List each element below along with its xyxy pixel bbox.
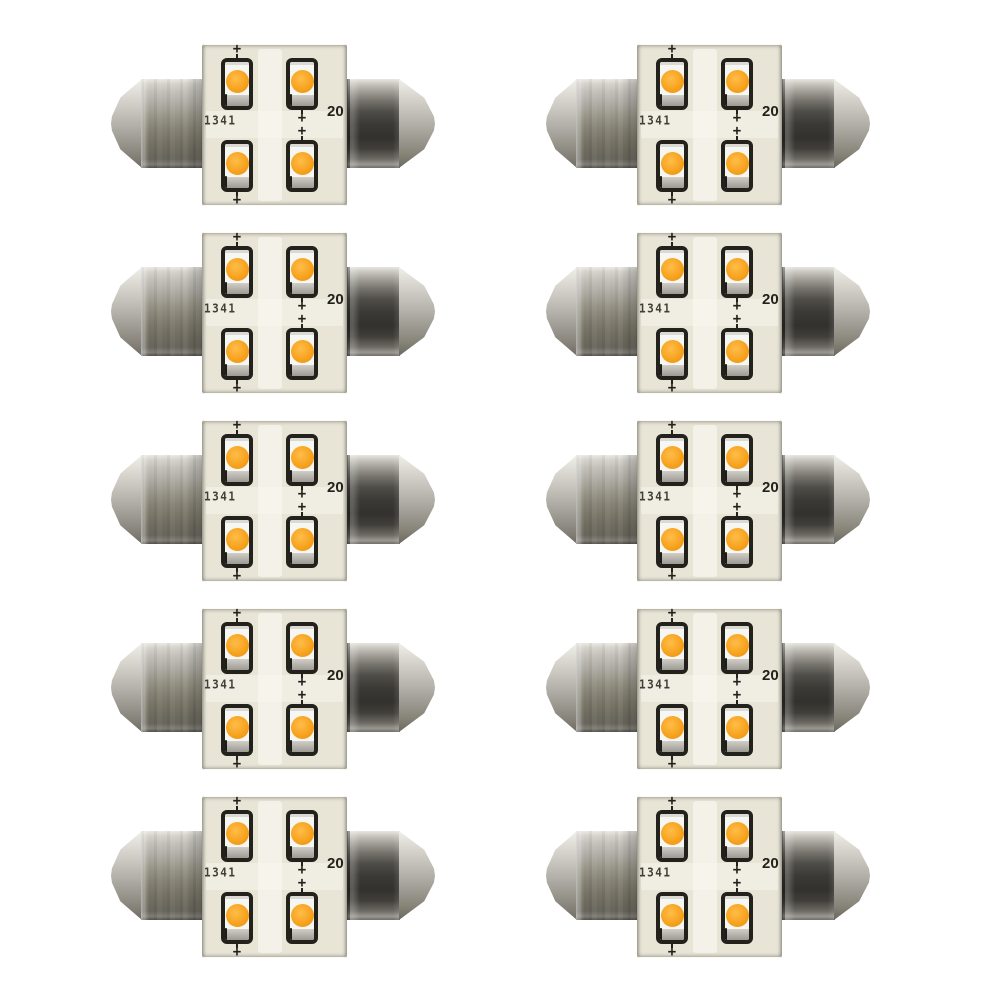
end-cap-tip-right xyxy=(834,831,870,920)
end-cap-right xyxy=(347,643,400,732)
end-cap-right xyxy=(782,643,835,732)
pcb-right-code-label: 20 xyxy=(762,292,779,308)
polarity-plus-icon: + xyxy=(729,127,745,140)
polarity-plus-icon: + xyxy=(294,862,310,875)
led-amber-die xyxy=(291,904,314,927)
led-amber-die xyxy=(661,258,684,281)
festoon-led-bulb: + + + + 1341 20 xyxy=(546,796,870,958)
led-amber-die xyxy=(291,152,314,175)
smd-led xyxy=(221,246,253,298)
polarity-plus-icon: + xyxy=(664,233,680,246)
led-electrode-pad xyxy=(660,95,684,106)
end-cap-tip-right xyxy=(834,455,870,544)
led-top-contact xyxy=(725,626,749,629)
plus-glyph: + xyxy=(733,691,741,700)
led-electrode-pad xyxy=(660,929,684,940)
led-electrode-pad xyxy=(290,741,314,752)
electrode-mark xyxy=(725,364,727,380)
led-top-contact xyxy=(290,438,314,441)
led-amber-die xyxy=(661,446,684,469)
polarity-tick xyxy=(301,324,303,328)
polarity-plus-icon: + xyxy=(729,298,745,311)
smd-led xyxy=(656,892,688,944)
pcb-board: + + + + 1341 20 xyxy=(637,44,782,206)
smd-led xyxy=(721,434,753,486)
led-amber-die xyxy=(291,446,314,469)
smd-led xyxy=(221,622,253,674)
plus-glyph: + xyxy=(298,315,306,324)
plus-glyph: + xyxy=(733,678,741,687)
end-cap-left xyxy=(576,831,638,920)
smd-led xyxy=(221,434,253,486)
led-top-contact xyxy=(725,250,749,253)
end-cap-tip-right xyxy=(399,455,435,544)
end-cap-right xyxy=(782,79,835,168)
polarity-plus-icon: + xyxy=(229,45,245,58)
led-electrode-pad xyxy=(290,283,314,294)
smd-led xyxy=(286,140,318,192)
led-top-contact xyxy=(225,144,249,147)
led-amber-die xyxy=(226,70,249,93)
plus-glyph: + xyxy=(233,760,241,769)
led-top-contact xyxy=(660,814,684,817)
led-electrode-pad xyxy=(225,177,249,188)
end-cap-left xyxy=(576,267,638,356)
plus-glyph: + xyxy=(233,609,241,618)
smd-led xyxy=(221,328,253,380)
end-cap-tip-right xyxy=(834,643,870,732)
led-top-contact xyxy=(725,332,749,335)
end-cap-tip-left xyxy=(546,831,577,920)
end-cap-right xyxy=(782,831,835,920)
led-electrode-pad xyxy=(225,95,249,106)
pcb-right-code-label: 20 xyxy=(327,292,344,308)
polarity-tick xyxy=(236,242,238,246)
pcb-date-code-label: 1341 xyxy=(204,678,237,692)
pcb-date-code-label: 1341 xyxy=(204,490,237,504)
led-amber-die xyxy=(291,634,314,657)
end-cap-right xyxy=(782,455,835,544)
pcb-date-code-label: 1341 xyxy=(639,490,672,504)
plus-glyph: + xyxy=(668,572,676,581)
polarity-plus-icon: + xyxy=(294,879,310,892)
pcb-date-code-label: 1341 xyxy=(204,302,237,316)
electrode-mark xyxy=(725,552,727,568)
led-amber-die xyxy=(291,528,314,551)
led-amber-die xyxy=(661,716,684,739)
plus-glyph: + xyxy=(668,421,676,430)
smd-led xyxy=(656,434,688,486)
led-amber-die xyxy=(226,822,249,845)
polarity-plus-icon: + xyxy=(664,421,680,434)
electrode-mark xyxy=(660,282,662,298)
pcb-right-code-label: 20 xyxy=(762,104,779,120)
led-amber-die xyxy=(226,152,249,175)
end-cap-right xyxy=(347,79,400,168)
end-cap-tip-left xyxy=(111,455,142,544)
polarity-plus-icon: + xyxy=(664,756,680,769)
plus-glyph: + xyxy=(298,678,306,687)
led-amber-die xyxy=(291,258,314,281)
smd-led xyxy=(721,704,753,756)
led-electrode-pad xyxy=(725,659,749,670)
plus-glyph: + xyxy=(668,797,676,806)
polarity-plus-icon: + xyxy=(664,568,680,581)
electrode-mark xyxy=(725,94,727,110)
led-top-contact xyxy=(225,896,249,899)
polarity-plus-icon: + xyxy=(294,674,310,687)
led-top-contact xyxy=(290,144,314,147)
led-electrode-pad xyxy=(660,177,684,188)
led-electrode-pad xyxy=(290,177,314,188)
led-top-contact xyxy=(660,332,684,335)
led-top-contact xyxy=(660,626,684,629)
electrode-mark xyxy=(225,658,227,674)
festoon-led-bulb: + + + + 1341 20 xyxy=(111,232,435,394)
polarity-plus-icon: + xyxy=(229,192,245,205)
led-amber-die xyxy=(726,340,749,363)
led-top-contact xyxy=(225,332,249,335)
plus-glyph: + xyxy=(298,866,306,875)
pcb-board: + + + + 1341 20 xyxy=(202,420,347,582)
end-cap-right xyxy=(782,267,835,356)
electrode-mark xyxy=(225,364,227,380)
electrode-mark xyxy=(290,176,292,192)
led-amber-die xyxy=(226,446,249,469)
led-top-contact xyxy=(660,144,684,147)
electrode-mark xyxy=(290,658,292,674)
led-top-contact xyxy=(725,520,749,523)
electrode-mark xyxy=(225,470,227,486)
plus-glyph: + xyxy=(733,315,741,324)
smd-led xyxy=(721,58,753,110)
smd-led xyxy=(721,892,753,944)
smd-led xyxy=(721,516,753,568)
end-cap-tip-left xyxy=(546,79,577,168)
led-top-contact xyxy=(290,626,314,629)
electrode-mark xyxy=(660,470,662,486)
smd-led xyxy=(721,328,753,380)
pcb-date-code-label: 1341 xyxy=(204,114,237,128)
led-electrode-pad xyxy=(290,95,314,106)
electrode-mark xyxy=(225,94,227,110)
polarity-plus-icon: + xyxy=(729,486,745,499)
led-top-contact xyxy=(225,62,249,65)
end-cap-tip-right xyxy=(399,267,435,356)
electrode-mark xyxy=(725,470,727,486)
smd-led xyxy=(286,328,318,380)
led-amber-die xyxy=(661,904,684,927)
polarity-tick xyxy=(236,430,238,434)
led-top-contact xyxy=(225,520,249,523)
polarity-plus-icon: + xyxy=(729,691,745,704)
led-top-contact xyxy=(660,896,684,899)
led-electrode-pad xyxy=(225,471,249,482)
electrode-mark xyxy=(660,928,662,944)
pcb-right-code-label: 20 xyxy=(762,856,779,872)
polarity-tick xyxy=(736,136,738,140)
polarity-plus-icon: + xyxy=(729,503,745,516)
electrode-mark xyxy=(290,740,292,756)
led-electrode-pad xyxy=(225,659,249,670)
led-electrode-pad xyxy=(290,847,314,858)
plus-glyph: + xyxy=(233,948,241,957)
pcb-board: + + + + 1341 20 xyxy=(202,608,347,770)
pcb-date-code-label: 1341 xyxy=(204,866,237,880)
led-amber-die xyxy=(661,634,684,657)
pcb-date-code-label: 1341 xyxy=(639,678,672,692)
polarity-plus-icon: + xyxy=(729,110,745,123)
electrode-mark xyxy=(225,552,227,568)
led-amber-die xyxy=(661,340,684,363)
smd-led xyxy=(721,810,753,862)
electrode-mark xyxy=(225,740,227,756)
polarity-plus-icon: + xyxy=(729,315,745,328)
pcb-right-code-label: 20 xyxy=(327,480,344,496)
polarity-tick xyxy=(736,700,738,704)
pcb-right-code-label: 20 xyxy=(762,668,779,684)
led-electrode-pad xyxy=(725,365,749,376)
electrode-mark xyxy=(725,282,727,298)
plus-glyph: + xyxy=(733,866,741,875)
end-cap-right xyxy=(347,831,400,920)
pcb-right-code-label: 20 xyxy=(762,480,779,496)
polarity-plus-icon: + xyxy=(229,797,245,810)
electrode-mark xyxy=(290,846,292,862)
polarity-plus-icon: + xyxy=(294,110,310,123)
smd-led xyxy=(656,140,688,192)
led-top-contact xyxy=(290,896,314,899)
polarity-plus-icon: + xyxy=(729,879,745,892)
electrode-mark xyxy=(660,94,662,110)
end-cap-tip-left xyxy=(111,79,142,168)
polarity-plus-icon: + xyxy=(664,45,680,58)
smd-led xyxy=(221,140,253,192)
smd-led xyxy=(221,810,253,862)
plus-glyph: + xyxy=(233,384,241,393)
led-amber-die xyxy=(661,528,684,551)
smd-led xyxy=(656,58,688,110)
led-amber-die xyxy=(726,528,749,551)
polarity-tick xyxy=(671,430,673,434)
festoon-led-bulb: + + + + 1341 20 xyxy=(111,44,435,206)
led-amber-die xyxy=(226,634,249,657)
led-electrode-pad xyxy=(725,283,749,294)
smd-led xyxy=(286,892,318,944)
smd-led xyxy=(721,622,753,674)
festoon-led-bulb: + + + + 1341 20 xyxy=(546,232,870,394)
electrode-mark xyxy=(225,282,227,298)
plus-glyph: + xyxy=(298,114,306,123)
polarity-plus-icon: + xyxy=(729,862,745,875)
polarity-plus-icon: + xyxy=(664,192,680,205)
plus-glyph: + xyxy=(668,233,676,242)
led-electrode-pad xyxy=(725,471,749,482)
polarity-tick xyxy=(671,806,673,810)
smd-led xyxy=(286,810,318,862)
polarity-tick xyxy=(301,512,303,516)
led-amber-die xyxy=(726,822,749,845)
polarity-plus-icon: + xyxy=(294,691,310,704)
electrode-mark xyxy=(225,176,227,192)
end-cap-left xyxy=(141,455,203,544)
led-amber-die xyxy=(226,258,249,281)
end-cap-right xyxy=(347,267,400,356)
led-top-contact xyxy=(725,438,749,441)
smd-led xyxy=(721,246,753,298)
electrode-mark xyxy=(660,740,662,756)
end-cap-left xyxy=(576,455,638,544)
end-cap-left xyxy=(576,79,638,168)
led-electrode-pad xyxy=(660,283,684,294)
plus-glyph: + xyxy=(733,114,741,123)
polarity-plus-icon: + xyxy=(294,127,310,140)
pcb-board: + + + + 1341 20 xyxy=(202,44,347,206)
pcb-date-code-label: 1341 xyxy=(639,114,672,128)
plus-glyph: + xyxy=(668,384,676,393)
led-electrode-pad xyxy=(660,659,684,670)
led-electrode-pad xyxy=(225,847,249,858)
led-amber-die xyxy=(726,446,749,469)
electrode-mark xyxy=(660,658,662,674)
end-cap-left xyxy=(141,267,203,356)
smd-led xyxy=(221,58,253,110)
pcb-right-code-label: 20 xyxy=(327,668,344,684)
polarity-plus-icon: + xyxy=(294,486,310,499)
led-top-contact xyxy=(225,708,249,711)
led-electrode-pad xyxy=(660,847,684,858)
led-electrode-pad xyxy=(725,741,749,752)
end-cap-tip-left xyxy=(546,455,577,544)
led-top-contact xyxy=(290,814,314,817)
polarity-tick xyxy=(301,700,303,704)
end-cap-tip-left xyxy=(111,267,142,356)
led-amber-die xyxy=(291,822,314,845)
end-cap-left xyxy=(576,643,638,732)
led-electrode-pad xyxy=(225,365,249,376)
pcb-board: + + + + 1341 20 xyxy=(637,232,782,394)
plus-glyph: + xyxy=(298,490,306,499)
led-top-contact xyxy=(225,438,249,441)
led-electrode-pad xyxy=(290,365,314,376)
plus-glyph: + xyxy=(668,196,676,205)
electrode-mark xyxy=(290,552,292,568)
led-amber-die xyxy=(226,340,249,363)
electrode-mark xyxy=(660,176,662,192)
end-cap-left xyxy=(141,831,203,920)
electrode-mark xyxy=(225,846,227,862)
led-top-contact xyxy=(290,708,314,711)
polarity-plus-icon: + xyxy=(229,233,245,246)
led-top-contact xyxy=(725,144,749,147)
smd-led xyxy=(656,704,688,756)
end-cap-tip-right xyxy=(399,831,435,920)
led-amber-die xyxy=(661,70,684,93)
led-amber-die xyxy=(226,904,249,927)
pcb-board: + + + + 1341 20 xyxy=(202,232,347,394)
led-top-contact xyxy=(225,250,249,253)
led-amber-die xyxy=(291,70,314,93)
polarity-plus-icon: + xyxy=(294,503,310,516)
plus-glyph: + xyxy=(233,572,241,581)
pcb-board: + + + + 1341 20 xyxy=(637,796,782,958)
led-electrode-pad xyxy=(225,929,249,940)
electrode-mark xyxy=(660,846,662,862)
festoon-led-bulb: + + + + 1341 20 xyxy=(546,44,870,206)
led-electrode-pad xyxy=(725,553,749,564)
end-cap-tip-right xyxy=(399,79,435,168)
electrode-mark xyxy=(290,928,292,944)
polarity-plus-icon: + xyxy=(229,421,245,434)
end-cap-tip-left xyxy=(111,643,142,732)
led-top-contact xyxy=(290,62,314,65)
smd-led xyxy=(221,704,253,756)
led-top-contact xyxy=(660,708,684,711)
polarity-tick xyxy=(736,324,738,328)
festoon-led-bulb: + + + + 1341 20 xyxy=(111,796,435,958)
led-top-contact xyxy=(660,250,684,253)
led-amber-die xyxy=(226,716,249,739)
polarity-plus-icon: + xyxy=(294,298,310,311)
plus-glyph: + xyxy=(668,45,676,54)
led-top-contact xyxy=(725,62,749,65)
end-cap-tip-right xyxy=(399,643,435,732)
polarity-plus-icon: + xyxy=(664,380,680,393)
plus-glyph: + xyxy=(668,948,676,957)
smd-led xyxy=(286,704,318,756)
festoon-led-bulb: + + + + 1341 20 xyxy=(546,420,870,582)
electrode-mark xyxy=(725,928,727,944)
led-top-contact xyxy=(290,332,314,335)
end-cap-left xyxy=(141,643,203,732)
smd-led xyxy=(286,622,318,674)
plus-glyph: + xyxy=(733,127,741,136)
plus-glyph: + xyxy=(233,45,241,54)
plus-glyph: + xyxy=(668,760,676,769)
led-amber-die xyxy=(726,70,749,93)
led-amber-die xyxy=(726,634,749,657)
electrode-mark xyxy=(225,928,227,944)
polarity-tick xyxy=(236,54,238,58)
led-electrode-pad xyxy=(725,95,749,106)
electrode-mark xyxy=(725,846,727,862)
polarity-plus-icon: + xyxy=(294,315,310,328)
smd-led xyxy=(656,328,688,380)
plus-glyph: + xyxy=(233,797,241,806)
led-electrode-pad xyxy=(290,471,314,482)
polarity-plus-icon: + xyxy=(664,797,680,810)
plus-glyph: + xyxy=(298,127,306,136)
polarity-tick xyxy=(236,806,238,810)
smd-led xyxy=(286,516,318,568)
led-top-contact xyxy=(660,438,684,441)
led-amber-die xyxy=(726,152,749,175)
led-top-contact xyxy=(660,62,684,65)
plus-glyph: + xyxy=(298,302,306,311)
end-cap-tip-left xyxy=(546,643,577,732)
smd-led xyxy=(656,246,688,298)
led-top-contact xyxy=(225,814,249,817)
plus-glyph: + xyxy=(733,879,741,888)
electrode-mark xyxy=(660,552,662,568)
polarity-tick xyxy=(301,888,303,892)
polarity-tick xyxy=(671,54,673,58)
electrode-mark xyxy=(660,364,662,380)
led-amber-die xyxy=(661,152,684,175)
polarity-plus-icon: + xyxy=(729,674,745,687)
pcb-right-code-label: 20 xyxy=(327,104,344,120)
plus-glyph: + xyxy=(668,609,676,618)
